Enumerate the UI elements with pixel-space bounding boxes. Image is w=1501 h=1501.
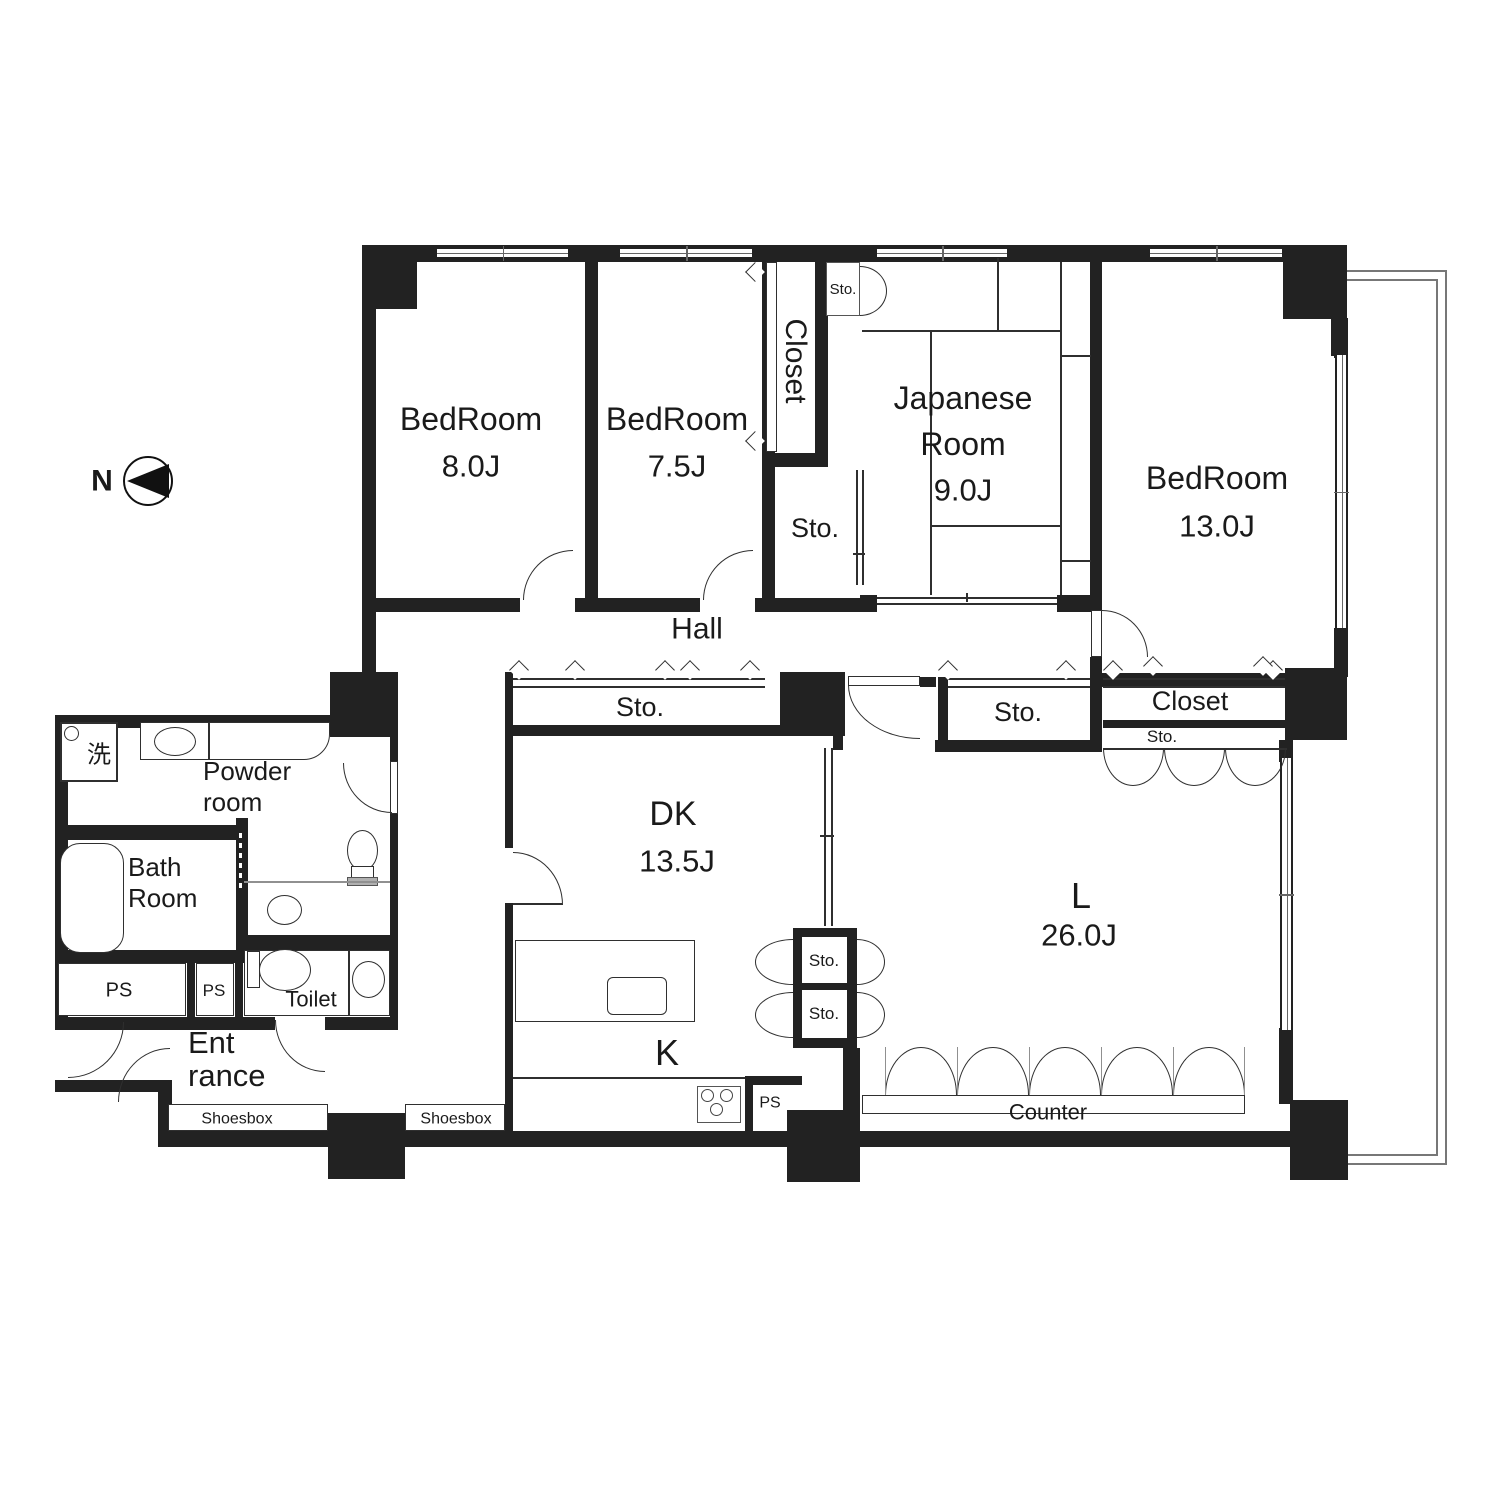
shoesbox-label: Shoesbox: [420, 1112, 491, 1129]
storage-label: Sto.: [616, 693, 664, 721]
window: [620, 247, 752, 259]
sliding-door-tick: [966, 593, 968, 602]
shoesbox-label: Shoesbox: [201, 1112, 272, 1129]
north-label: N: [91, 465, 113, 497]
bifold-arc: [857, 939, 885, 962]
bathtub: [60, 843, 124, 953]
room-label-powder: Powder room: [203, 756, 291, 818]
sliding-door: [877, 603, 1057, 605]
bifold-arc: [857, 1015, 885, 1038]
toilet-bowl: [347, 830, 378, 871]
wall: [860, 595, 877, 612]
bifold-arc: [755, 992, 793, 1015]
room-label-bedroom2: BedRoom: [606, 403, 748, 437]
folding-track: [948, 678, 1090, 680]
wall: [745, 1076, 802, 1085]
wall: [762, 467, 775, 598]
room-size-japanese: 9.0J: [934, 475, 993, 508]
storage-label: Sto.: [809, 952, 839, 970]
folding-track: [513, 678, 765, 680]
bifold-arc: [755, 962, 793, 985]
storage-label: Sto.: [1147, 728, 1177, 746]
stove-burner: [701, 1089, 714, 1102]
bifold-arc: [755, 939, 793, 962]
folding-door-chevron: [740, 660, 760, 680]
door-arc-toilet: [275, 1020, 325, 1072]
sliding-door: [862, 470, 864, 585]
door-arc-dk: [513, 852, 563, 905]
wall: [847, 928, 857, 1048]
bifold-arc: [1103, 748, 1133, 786]
bath-line2: Room: [128, 883, 197, 914]
wall: [236, 818, 248, 950]
balcony-inner-rail: [1345, 279, 1438, 1156]
vanity-sink: [154, 727, 196, 756]
door-arc-powder: [343, 763, 392, 813]
window: [1335, 355, 1348, 628]
sliding-door: [824, 748, 826, 926]
tatami-line: [862, 330, 1060, 332]
window: [877, 247, 1007, 259]
storage-label: Sto.: [994, 698, 1042, 726]
room-size-bedroom2: 7.5J: [648, 451, 707, 484]
wall-pillar: [1283, 245, 1347, 319]
bath-line1: Bath: [128, 852, 197, 883]
tatami-line: [1060, 560, 1091, 562]
sliding-door: [831, 748, 833, 926]
stove-burner: [720, 1089, 733, 1102]
wall: [1090, 657, 1102, 752]
room-label-bedroom3: BedRoom: [1146, 462, 1288, 496]
counter-fold-divider: [1244, 1047, 1245, 1095]
sliding-door-tick: [820, 835, 834, 837]
wall: [325, 1017, 398, 1030]
powder-line1: Powder: [203, 756, 291, 787]
kitchen-sink: [607, 977, 667, 1015]
wall: [1279, 1028, 1293, 1104]
folding-track: [948, 686, 1090, 688]
wall: [55, 825, 245, 840]
sliding-door-tick: [853, 553, 865, 555]
counter-fold-arc: [957, 1047, 993, 1095]
room-size-bedroom1: 8.0J: [442, 451, 501, 484]
ps-label: PS: [106, 981, 133, 1002]
counter-fold-arc: [1029, 1047, 1065, 1095]
bifold-arc: [1133, 748, 1164, 786]
folding-track: [1103, 678, 1285, 680]
floor-plan: N BedRoom 8.0J BedRoom 7.5J BedRoom 13.0…: [0, 0, 1501, 1501]
counter-fold-arc: [993, 1047, 1029, 1095]
wall: [390, 813, 398, 1030]
room-label-entrance: Ent rance: [188, 1026, 266, 1092]
room-label-toilet: Toilet: [285, 987, 336, 1010]
closet-door-leaf: [766, 262, 777, 452]
wall: [505, 736, 513, 848]
folding-door-chevron: [565, 660, 585, 680]
counter-fold-divider: [957, 1047, 958, 1095]
toilet-basin: [352, 961, 385, 998]
wall: [1334, 318, 1348, 358]
wall: [505, 725, 780, 736]
stove-burner: [710, 1103, 723, 1116]
bifold-arc: [755, 1015, 793, 1038]
wall: [1103, 720, 1285, 728]
door-arc-bedroom2: [703, 550, 753, 600]
room-label-kitchen: K: [655, 1034, 679, 1072]
door-arc-jp-storage: [860, 291, 887, 316]
closet-label: Closet: [779, 318, 811, 403]
wall: [505, 903, 513, 1131]
door-leaf-dk: [513, 903, 562, 905]
counter-fold-arc: [1137, 1047, 1173, 1095]
toilet-room-divider: [348, 950, 350, 1016]
wall-pillar: [787, 1110, 860, 1182]
wall: [390, 737, 398, 763]
tatami-line: [1060, 262, 1062, 595]
storage-label: Sto.: [830, 282, 857, 298]
counter-fold-arc: [1173, 1047, 1209, 1095]
bifold-arc: [857, 992, 885, 1015]
wall-pillar: [1290, 1100, 1348, 1180]
wall: [362, 598, 520, 612]
wall-pillar: [1285, 668, 1347, 740]
washing-machine-label: 洗: [87, 742, 111, 767]
wall: [187, 963, 195, 1017]
counter-fold-arc: [921, 1047, 957, 1095]
wall: [362, 245, 376, 678]
wall: [843, 1048, 860, 1112]
room-label-japanese-1: Japanese: [894, 382, 1033, 416]
folding-door-chevron: [1056, 660, 1076, 680]
wall-pillar: [780, 672, 845, 736]
bifold-arc: [1164, 748, 1194, 786]
door-arc-entrance: [118, 1048, 170, 1102]
wall: [935, 740, 1102, 752]
tatami-line: [930, 525, 1061, 527]
washing-machine-knob: [64, 726, 79, 741]
room-size-living: 26.0J: [1041, 920, 1117, 953]
wall: [755, 598, 862, 612]
room-label-bath: Bath Room: [128, 852, 197, 914]
counter-fold-arc: [1065, 1047, 1101, 1095]
wall: [585, 262, 598, 598]
window: [1150, 247, 1282, 259]
bifold-arc: [1194, 748, 1225, 786]
folding-door-chevron: [655, 660, 675, 680]
wall: [235, 963, 243, 1017]
wc-basin: [267, 895, 302, 925]
wc-counter-line: [244, 881, 390, 883]
tatami-line: [997, 258, 999, 332]
counter-fold-divider: [885, 1047, 886, 1095]
wall: [762, 453, 828, 467]
kitchen-island: [515, 940, 695, 1022]
counter-fold-arc: [1101, 1047, 1137, 1095]
wall: [1057, 595, 1090, 612]
door-arc-bedroom3: [1102, 610, 1148, 657]
window: [437, 247, 568, 259]
storage-label: Sto.: [791, 514, 839, 542]
folding-door-chevron: [680, 660, 700, 680]
wall: [793, 928, 802, 1048]
wall: [833, 732, 843, 750]
powder-line2: room: [203, 787, 291, 818]
folding-track: [513, 686, 765, 688]
entrance-line2: rance: [188, 1059, 266, 1092]
wall-pillar: [328, 1113, 405, 1179]
ps-label: PS: [759, 1096, 780, 1113]
vanity-divider: [208, 722, 210, 760]
room-label-hall: Hall: [671, 613, 723, 645]
storage-label: Sto.: [809, 1005, 839, 1023]
window: [1280, 758, 1293, 1030]
counter-fold-divider: [1173, 1047, 1174, 1095]
wall-pillar: [330, 672, 398, 737]
door-leaf-bedroom3: [1091, 610, 1102, 657]
door-arc-bedroom1: [523, 550, 573, 600]
door-arc-jp-storage: [860, 266, 887, 291]
wall: [920, 677, 936, 687]
room-size-dk: 13.5J: [639, 846, 715, 879]
bath-door-dashed: [239, 833, 242, 891]
kitchen-counter-line: [513, 1077, 745, 1079]
toilet-bowl: [259, 949, 311, 991]
wall: [244, 935, 398, 950]
counter-fold-arc: [885, 1047, 921, 1095]
door-arc-hall: [848, 685, 920, 739]
entrance-line1: Ent: [188, 1026, 266, 1059]
room-label-japanese-2: Room: [920, 428, 1005, 462]
bifold-arc: [1225, 748, 1255, 786]
room-label-dk: DK: [649, 797, 696, 833]
door-arc-entrance: [68, 1022, 124, 1078]
tatami-line: [930, 332, 932, 595]
counter-fold-arc: [1209, 1047, 1245, 1095]
room-size-bedroom3: 13.0J: [1179, 511, 1255, 544]
wall: [575, 598, 700, 612]
closet-label: Closet: [1152, 687, 1229, 715]
counter-fold-divider: [1101, 1047, 1102, 1095]
counter-label: Counter: [1009, 1100, 1087, 1123]
room-label-living: L: [1071, 877, 1091, 915]
sliding-door: [856, 470, 858, 585]
ps-label: PS: [203, 982, 226, 1000]
counter-fold-divider: [1029, 1047, 1030, 1095]
bifold-arc: [857, 962, 885, 985]
room-label-bedroom1: BedRoom: [400, 403, 542, 437]
wall: [745, 1076, 753, 1131]
wall: [1090, 245, 1102, 612]
tatami-line: [1060, 355, 1091, 357]
